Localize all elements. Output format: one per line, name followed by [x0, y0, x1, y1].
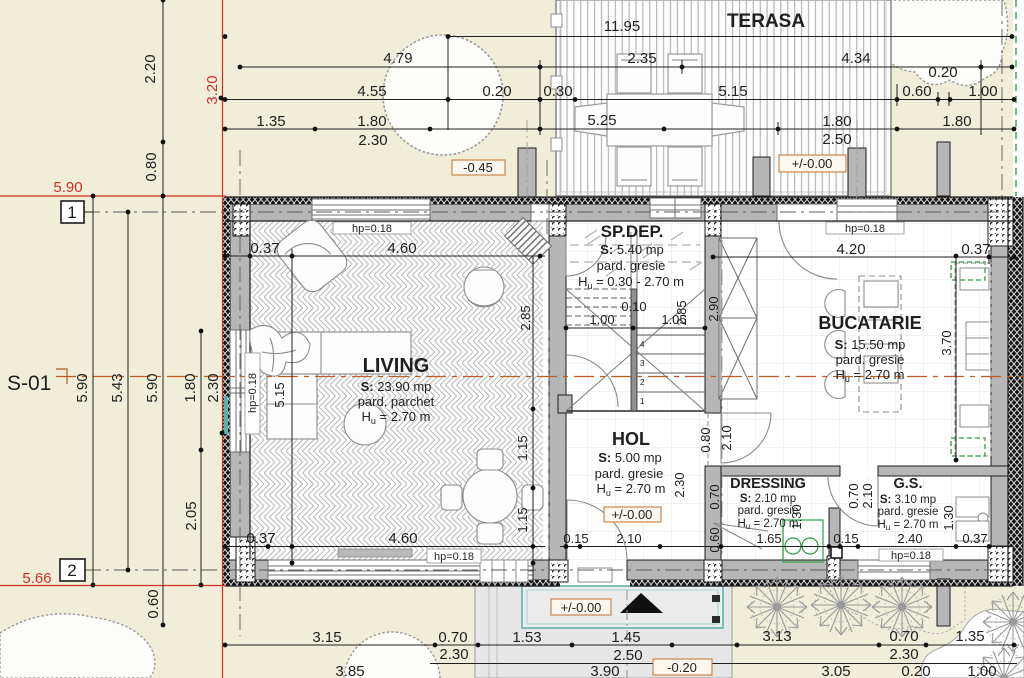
svg-text:0.70: 0.70	[438, 629, 467, 646]
svg-text:1.30: 1.30	[941, 505, 956, 530]
svg-text:hp=0.18: hp=0.18	[845, 223, 885, 235]
svg-text:3.15: 3.15	[312, 629, 341, 646]
svg-text:pard. gresie: pard. gresie	[878, 506, 939, 518]
svg-text:5.66: 5.66	[22, 570, 51, 587]
svg-text:11.95: 11.95	[604, 18, 640, 35]
svg-text:3.85: 3.85	[335, 663, 364, 678]
svg-text:pard. gresie: pard. gresie	[597, 258, 666, 273]
svg-text:SP.DEP.: SP.DEP.	[601, 222, 664, 241]
svg-text:pard. parchet: pard. parchet	[358, 394, 435, 409]
svg-text:2.90: 2.90	[706, 296, 721, 321]
svg-text:2.85: 2.85	[518, 305, 533, 330]
svg-text:3.13: 3.13	[762, 628, 791, 645]
svg-text:hp=0.18: hp=0.18	[352, 223, 392, 235]
svg-text:1.53: 1.53	[512, 629, 541, 646]
svg-text:3.70: 3.70	[939, 330, 954, 355]
svg-text:5.15: 5.15	[718, 83, 747, 100]
svg-text:0.37: 0.37	[961, 241, 990, 258]
svg-text:0.60: 0.60	[145, 589, 162, 618]
svg-text:0.60: 0.60	[902, 83, 931, 100]
svg-text:S: 23.90 mp: S: 23.90 mp	[361, 379, 432, 394]
svg-text:pard. gresie: pard. gresie	[836, 352, 905, 367]
svg-text:G.S.: G.S.	[893, 476, 922, 492]
svg-text:2.50: 2.50	[613, 647, 642, 664]
svg-text:1.80: 1.80	[822, 113, 851, 130]
svg-text:2.35: 2.35	[627, 50, 656, 67]
svg-text:0.70: 0.70	[889, 628, 918, 645]
svg-text:2.10: 2.10	[719, 425, 734, 450]
svg-text:5.90: 5.90	[74, 373, 91, 402]
svg-text:5.15: 5.15	[272, 382, 287, 407]
svg-text:0.20: 0.20	[482, 83, 511, 100]
svg-text:2.30: 2.30	[439, 646, 468, 663]
svg-text:0.20: 0.20	[928, 64, 957, 81]
svg-text:3.20: 3.20	[204, 75, 221, 104]
svg-text:2: 2	[640, 378, 645, 387]
svg-text:0.80: 0.80	[143, 152, 160, 181]
svg-text:S: 5.40 mp: S: 5.40 mp	[600, 242, 664, 257]
svg-text:+/-0.00: +/-0.00	[561, 600, 602, 615]
svg-text:2.85: 2.85	[674, 300, 689, 325]
svg-text:LIVING: LIVING	[363, 355, 430, 377]
svg-text:S: 15.50 mp: S: 15.50 mp	[835, 337, 906, 352]
svg-text:5.43: 5.43	[109, 373, 126, 402]
svg-text:2.20: 2.20	[142, 54, 159, 83]
svg-text:0.60: 0.60	[707, 527, 722, 552]
svg-text:3.05: 3.05	[821, 663, 850, 678]
svg-text:1.00: 1.00	[967, 663, 996, 678]
svg-text:1.35: 1.35	[256, 113, 285, 130]
svg-text:S: 5.00 mp: S: 5.00 mp	[598, 450, 662, 465]
svg-text:2.10: 2.10	[616, 531, 641, 546]
svg-text:5.90: 5.90	[144, 373, 161, 402]
svg-text:hp=0.18: hp=0.18	[891, 550, 931, 562]
svg-text:hp=0.18: hp=0.18	[247, 373, 259, 413]
svg-text:4.55: 4.55	[357, 83, 386, 100]
svg-text:0.20: 0.20	[901, 663, 930, 678]
svg-text:1.15: 1.15	[515, 507, 530, 532]
svg-text:4.60: 4.60	[388, 530, 417, 547]
svg-text:1: 1	[67, 203, 76, 222]
svg-text:0.15: 0.15	[563, 531, 588, 546]
svg-text:S: 3.10 mp: S: 3.10 mp	[880, 494, 936, 506]
svg-text:3.90: 3.90	[590, 663, 619, 678]
svg-text:2.40: 2.40	[897, 531, 922, 546]
svg-text:-0.45: -0.45	[463, 160, 493, 175]
svg-text:1.65: 1.65	[756, 531, 781, 546]
svg-text:hp=0.18: hp=0.18	[434, 551, 474, 563]
svg-text:2.30: 2.30	[205, 373, 222, 402]
svg-text:HOL: HOL	[612, 429, 650, 449]
svg-text:1.80: 1.80	[357, 113, 386, 130]
svg-text:2: 2	[67, 561, 76, 580]
svg-text:0.70: 0.70	[846, 483, 861, 508]
svg-text:0.37: 0.37	[246, 530, 275, 547]
svg-text:0.37: 0.37	[962, 531, 987, 546]
svg-text:1: 1	[640, 397, 645, 406]
svg-text:1.15: 1.15	[515, 435, 530, 460]
svg-text:5.25: 5.25	[587, 112, 616, 129]
svg-text:0.15: 0.15	[833, 531, 858, 546]
svg-text:1.45: 1.45	[611, 629, 640, 646]
svg-text:2.30: 2.30	[672, 472, 687, 497]
svg-text:0.37: 0.37	[250, 240, 279, 257]
svg-text:-0.20: -0.20	[667, 660, 697, 675]
svg-text:TERASA: TERASA	[727, 11, 805, 32]
svg-text:2.30: 2.30	[889, 646, 918, 663]
svg-text:5.90: 5.90	[53, 179, 82, 196]
svg-text:1.00: 1.00	[968, 83, 997, 100]
svg-text:4.60: 4.60	[387, 240, 416, 257]
svg-text:4.34: 4.34	[841, 50, 870, 67]
svg-text:1.80: 1.80	[182, 373, 199, 402]
svg-text:2.30: 2.30	[358, 132, 387, 149]
svg-text:+/-0.00: +/-0.00	[792, 156, 833, 171]
svg-text:2.50: 2.50	[822, 131, 851, 148]
svg-text:Hu = 0.30 - 2.70 m: Hu = 0.30 - 2.70 m	[578, 274, 684, 291]
svg-text:4.79: 4.79	[383, 50, 412, 67]
svg-text:4: 4	[640, 340, 645, 349]
svg-text:2.10: 2.10	[860, 483, 875, 508]
svg-text:2.05: 2.05	[183, 501, 200, 530]
svg-text:3: 3	[640, 359, 645, 368]
svg-text:pard. gresie: pard. gresie	[738, 505, 799, 517]
svg-text:0.70: 0.70	[707, 484, 722, 509]
svg-text:4.20: 4.20	[836, 241, 865, 258]
svg-text:1.00: 1.00	[589, 312, 614, 327]
svg-text:1.35: 1.35	[955, 628, 984, 645]
svg-text:DRESSING: DRESSING	[730, 476, 806, 492]
svg-text:S: 2.10 mp: S: 2.10 mp	[740, 493, 796, 505]
svg-text:pard. gresie: pard. gresie	[595, 466, 664, 481]
svg-text:0.10: 0.10	[621, 299, 646, 314]
svg-text:0.30: 0.30	[543, 83, 572, 100]
svg-text:S-01: S-01	[7, 372, 51, 395]
svg-text:0.80: 0.80	[698, 427, 713, 452]
svg-text:1.80: 1.80	[942, 113, 971, 130]
svg-text:BUCATARIE: BUCATARIE	[818, 313, 921, 333]
svg-text:+/-0.00: +/-0.00	[612, 507, 653, 522]
